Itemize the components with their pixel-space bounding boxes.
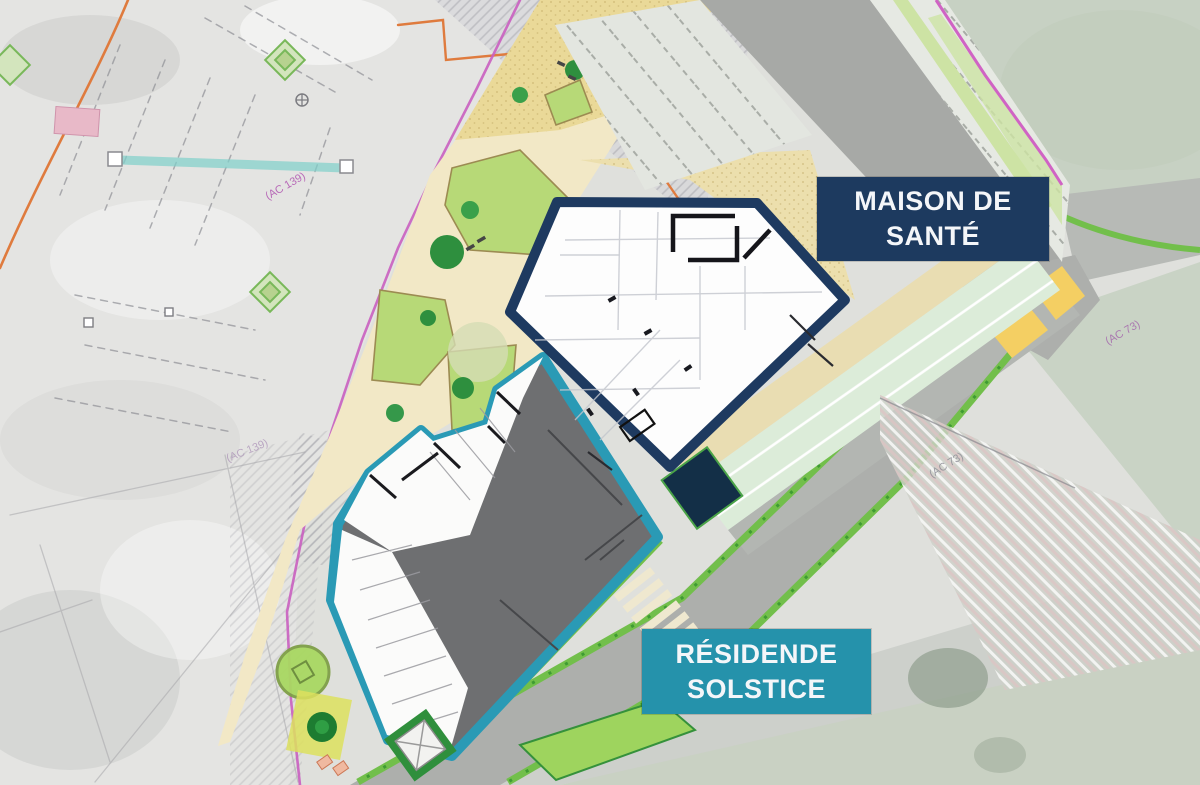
maison-label-line2: SANTÉ <box>886 219 980 254</box>
residence-solstice-label: RÉSIDENDE SOLSTICE <box>642 629 871 714</box>
site-plan-canvas: (AC 139) (AC 139) (AC 73) (AC 73) MAISON… <box>0 0 1200 785</box>
residence-label-line2: SOLSTICE <box>687 672 826 707</box>
site-plan-drawing: (AC 139) (AC 139) (AC 73) (AC 73) <box>0 0 1200 785</box>
maison-de-sante-label: MAISON DE SANTÉ <box>817 177 1049 261</box>
residence-label-line1: RÉSIDENDE <box>675 637 837 672</box>
maison-label-line1: MAISON DE <box>854 184 1012 219</box>
